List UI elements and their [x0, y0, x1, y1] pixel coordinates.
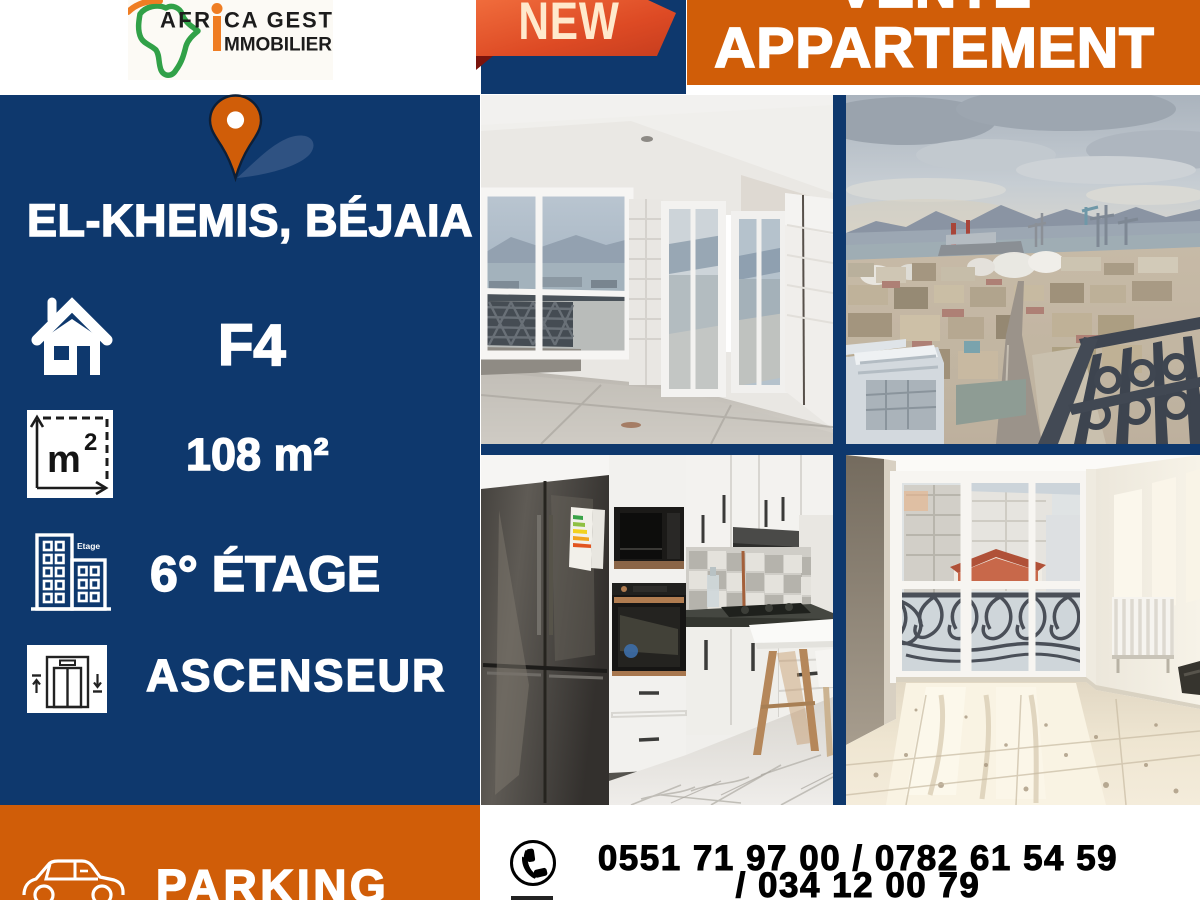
svg-text:2: 2 — [84, 429, 97, 456]
svg-text:MMOBILIER: MMOBILIER — [224, 35, 332, 56]
svg-text:Etage: Etage — [77, 541, 100, 551]
svg-text:m: m — [47, 439, 81, 481]
svg-text:CA GEST: CA GEST — [224, 8, 333, 33]
svg-text:NEW: NEW — [518, 0, 619, 51]
svg-text:AFR: AFR — [160, 8, 210, 33]
